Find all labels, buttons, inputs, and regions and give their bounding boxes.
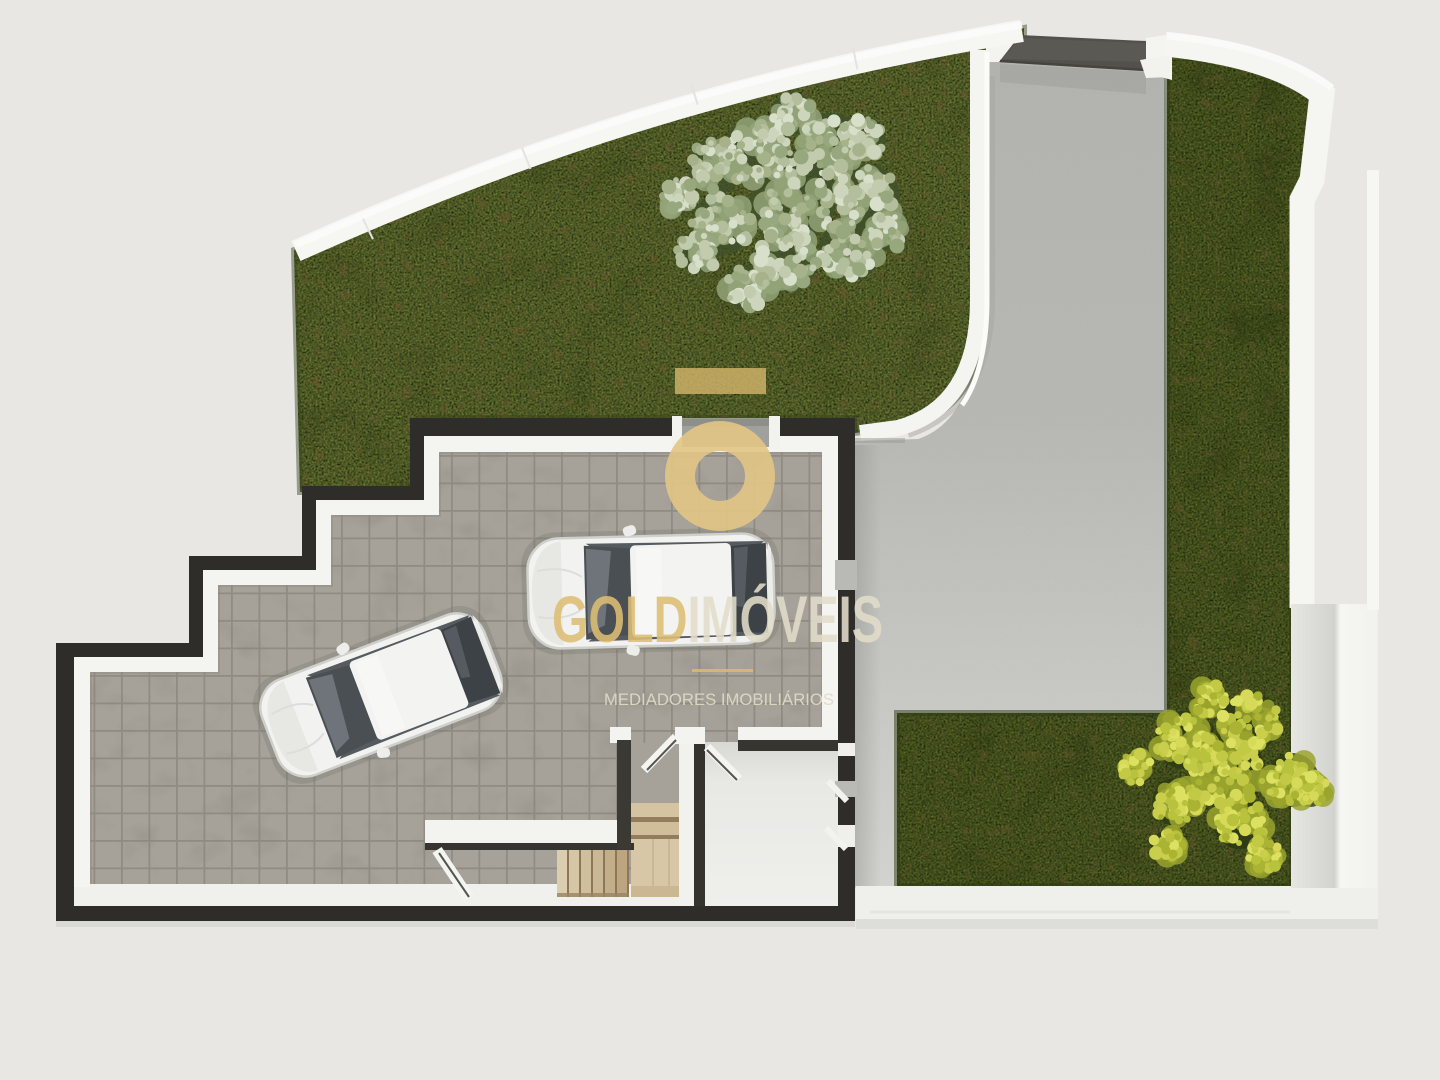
svg-text:MEDIADORES IMOBILIÁRIOS: MEDIADORES IMOBILIÁRIOS: [604, 690, 834, 709]
svg-text:GOLDIMÓVEIS: GOLDIMÓVEIS: [552, 582, 883, 656]
